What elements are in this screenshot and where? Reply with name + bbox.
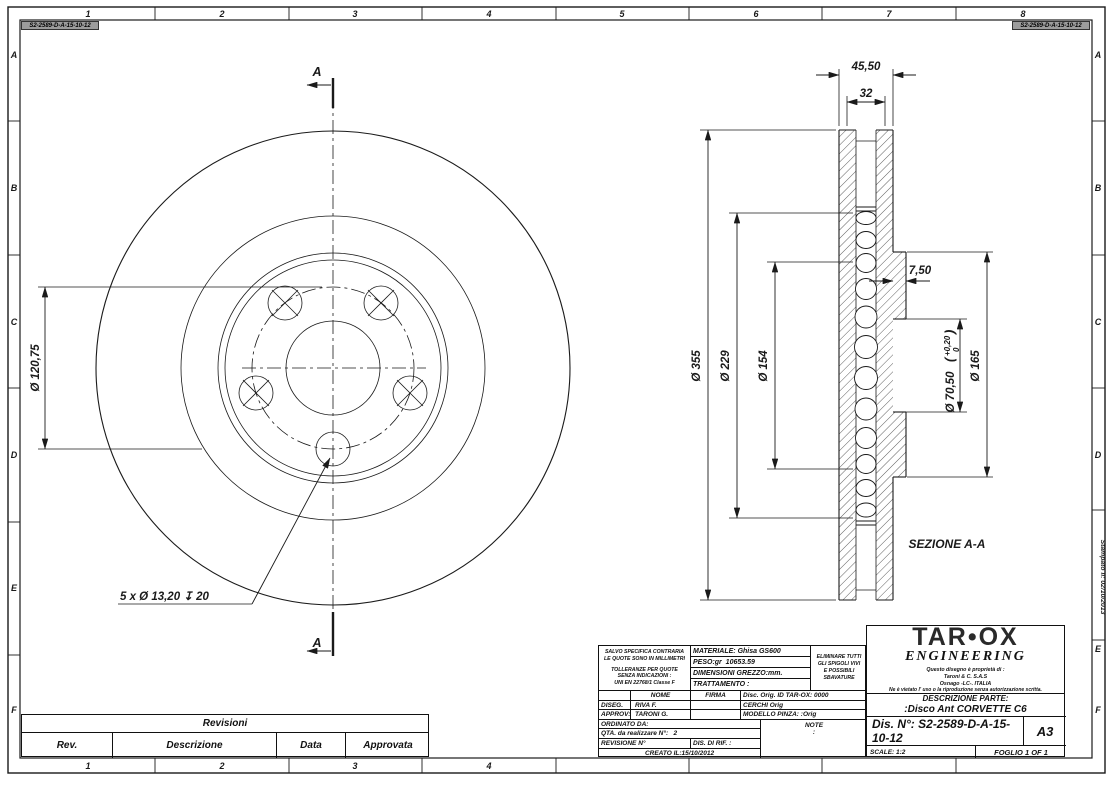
drawing-number-value: Dis. N°: S2-2589-D-A-15-10-12	[872, 717, 1023, 745]
brand-subtitle: ENGINEERING	[905, 650, 1026, 665]
ordinato-text: ORDINATO DA:	[601, 721, 648, 728]
brand-area: TAR•OX ENGINEERING Questo disegno è prop…	[867, 626, 1064, 693]
grid-col-label: 7	[886, 9, 892, 19]
vane-width-label: 32	[860, 88, 873, 100]
cerchi-text: CERCHI Orig	[743, 702, 783, 709]
part-description-area: DESCRIZIONE PARTE: :Disco Ant CORVETTE C…	[867, 693, 1064, 716]
drawing-number-text: S2-2589-D-A-15-10-12	[29, 23, 90, 29]
dim-bore-diameter: Ø 70,50 ( +0,20 0 )	[895, 319, 967, 412]
approv-firma-cell	[691, 710, 741, 720]
grid-row-label: C	[1095, 317, 1102, 327]
dim-vane-width: 32	[847, 88, 885, 126]
approv-label: APPROV:	[599, 710, 631, 720]
revisions-title-text: Revisioni	[203, 718, 247, 729]
center-lines	[242, 95, 426, 645]
grid-row-label: C	[11, 317, 18, 327]
vent-dia-label: Ø 229	[720, 350, 732, 382]
drawing-number-tag-right: S2-2589-D-A-15-10-12	[1012, 21, 1090, 30]
grid-col-label: 6	[753, 9, 759, 19]
grid-row-label: A	[10, 50, 18, 60]
ordinato-cell: ORDINATO DA:	[599, 720, 761, 729]
nome-header: NOME	[631, 691, 691, 701]
title-block: TAR•OX ENGINEERING Questo disegno è prop…	[866, 625, 1065, 757]
material-text: MATERIALE: Ghisa GS600	[693, 648, 781, 655]
holes-callout: 5 x Ø 13,20 ↧ 20	[118, 458, 330, 604]
outer-dia-label: Ø 355	[691, 350, 703, 382]
sheet-number-cell: FOGLIO 1 OF 1	[975, 745, 1066, 758]
diseg-name-text: RIVA F.	[635, 702, 657, 709]
sheet-format-value: A3	[1037, 724, 1054, 739]
revisions-title: Revisioni	[22, 715, 428, 733]
sheet-format-cell: A3	[1023, 716, 1066, 745]
bore-dia-label: Ø 70,50	[945, 371, 957, 413]
qty-text: QTA. da realizzare N°: 2	[601, 730, 677, 737]
deburr-line: GLI SPIGOLI VIVI	[818, 661, 860, 668]
diseg-label: DISEG.	[599, 701, 631, 710]
revisions-col-data: Data	[277, 733, 346, 758]
modello-text: MODELLO PINZA: :Orig	[743, 711, 816, 718]
brand-logo: TAR•OX	[912, 626, 1018, 650]
units-tolerance-notes: SALVO SPECIFICA CONTRARIA LE QUOTE SONO …	[599, 646, 691, 691]
grid-row-label: D	[11, 450, 18, 460]
approv-text: APPROV:	[601, 711, 630, 718]
note-box: NOTE :	[761, 720, 867, 758]
dim-flange-diameter: Ø 165	[907, 252, 993, 477]
revisions-col-approvata: Approvata	[346, 733, 430, 758]
disc-orig-text: Disc. Orig. ID TAR-OX: 0000	[743, 692, 828, 699]
col-data-text: Data	[300, 740, 322, 751]
grid-col-label: 4	[485, 761, 491, 771]
tol-note-line: SENZA INDICAZIONI :	[618, 673, 672, 680]
grid-row-label: D	[1095, 450, 1102, 460]
ownership-line: Osnago -LC-. ITALIA	[940, 681, 991, 688]
bore-tol-zero: 0	[952, 347, 961, 352]
tol-note-line: TOLLERANZE PER QUOTE	[611, 667, 678, 674]
section-view: 45,50 32 Ø 355 Ø 229	[691, 61, 993, 600]
section-hatching	[839, 130, 906, 600]
note-label-text: NOTE	[805, 722, 823, 729]
deburr-line: E POSSIBILI	[824, 668, 855, 675]
revisions-table: Revisioni Rev. Descrizione Data Approvat…	[21, 714, 429, 757]
bolt-circle-dim-label: Ø 120,75	[30, 344, 42, 392]
part-description-value: :Disco Ant CORVETTE C6	[904, 704, 1026, 716]
flange-dia-label: Ø 165	[970, 350, 982, 382]
col-desc-text: Descrizione	[166, 740, 222, 751]
modello-pinza-cell: MODELLO PINZA: :Orig	[741, 710, 867, 720]
section-letter: A	[311, 636, 321, 650]
grid-row-label: B	[1095, 183, 1102, 193]
revisione-text: REVISIONE N°	[601, 740, 646, 747]
drawing-number-text: S2-2589-D-A-15-10-12	[1020, 23, 1081, 29]
revisions-col-rev: Rev.	[22, 733, 113, 758]
spec-block: SALVO SPECIFICA CONTRARIA LE QUOTE SONO …	[598, 645, 866, 757]
scale-cell: SCALE: 1:2	[867, 745, 975, 758]
diseg-firma-cell	[691, 701, 741, 710]
grid-row-label: F	[11, 705, 17, 715]
nome-text: NOME	[651, 692, 671, 699]
approv-name-cell: TARONI G.	[631, 710, 691, 720]
col-appr-text: Approvata	[363, 740, 412, 751]
part-description-label: DESCRIZIONE PARTE:	[923, 694, 1009, 704]
grid-col-label: 4	[485, 9, 491, 19]
deburr-line: SBAVATURE	[823, 675, 854, 682]
section-cut-marker-bottom: A	[307, 612, 333, 656]
tol-note-line: UNI EN 22768/1 Classe F	[614, 680, 675, 687]
revisione-cell: REVISIONE N°	[599, 739, 691, 749]
grid-row-label: F	[1095, 705, 1101, 715]
diseg-name-cell: RIVA F.	[631, 701, 691, 710]
col-rev-text: Rev.	[57, 740, 78, 751]
bore-tol-plus: +0,20	[943, 335, 952, 356]
grid-row-label: B	[11, 183, 18, 193]
grid-row-label: E	[1095, 644, 1102, 654]
treatment-text: TRATTAMENTO :	[693, 681, 749, 688]
cerchi-cell: CERCHI Orig	[741, 701, 867, 710]
hat-dia-label: Ø 154	[758, 350, 770, 382]
grid-col-label: 2	[218, 9, 224, 19]
holes-note-label: 5 x Ø 13,20 ↧ 20	[120, 591, 210, 603]
drawing-number-tag-left: S2-2589-D-A-15-10-12	[21, 21, 99, 30]
grid-col-label: 1	[85, 761, 90, 771]
deburr-line: ELIMINARE TUTTI	[817, 654, 862, 661]
qty-cell: QTA. da realizzare N°: 2	[599, 729, 761, 739]
grid-row-label: E	[11, 583, 18, 593]
approv-name-text: TARONI G.	[635, 711, 668, 718]
grid-col-label: 5	[619, 9, 625, 19]
created-text: CREATO IL:15/10/2012	[645, 750, 714, 757]
weight-cell: PESO:gr 10653.59	[691, 657, 811, 668]
raw-dims-text: DIMENSIONI GREZZO:mm.	[693, 670, 782, 677]
grid-col-label: 1	[85, 9, 90, 19]
ownership-line: Questo disegno è proprietà di :	[926, 667, 1004, 674]
drawing-number-cell: Dis. N°: S2-2589-D-A-15-10-12	[867, 716, 1023, 745]
section-letter: A	[311, 65, 321, 79]
empty-cell	[599, 691, 631, 701]
units-note-line: LE QUOTE SONO IN MILLIMETRI	[604, 656, 685, 663]
front-view: A A Ø 120,75 5 x Ø 13,20 ↧ 20	[30, 65, 570, 656]
grid-col-label: 8	[1020, 9, 1025, 19]
units-note-line: SALVO SPECIFICA CONTRARIA	[605, 649, 684, 656]
scale-value: SCALE: 1:2	[870, 749, 905, 756]
section-cut-marker-top: A	[307, 65, 333, 108]
dim-vent-diameter: Ø 229	[720, 213, 853, 518]
deburr-note: ELIMINARE TUTTI GLI SPIGOLI VIVI E POSSI…	[811, 646, 867, 691]
grid-col-label: 3	[352, 761, 357, 771]
vent-holes	[855, 207, 878, 525]
hat-wall-label: 7,50	[909, 265, 932, 277]
overall-width-label: 45,50	[851, 61, 881, 73]
dis-rif-text: DIS. DI RIF. :	[693, 740, 731, 747]
dis-rif-cell: DIS. DI RIF. :	[691, 739, 761, 749]
section-view-title: SEZIONE A-A	[909, 537, 986, 551]
note-value-text: :	[813, 729, 815, 736]
disc-orig-cell: Disc. Orig. ID TAR-OX: 0000	[741, 691, 867, 701]
grid-row-label: A	[1094, 50, 1102, 60]
created-cell: CREATO IL:15/10/2012	[599, 749, 761, 758]
revisions-col-descrizione: Descrizione	[113, 733, 277, 758]
printed-date-note: Stampato il: 02/10/2013	[1099, 540, 1106, 615]
drawing-sheet: 1 2 3 4 5 6 7 8 1 2 3 4 A B C D E F A B …	[0, 0, 1113, 786]
diseg-text: DISEG.	[601, 702, 623, 709]
treatment-cell: TRATTAMENTO :	[691, 679, 811, 691]
bore-tol-paren-close: )	[942, 330, 957, 336]
firma-text: FIRMA	[705, 692, 726, 699]
grid-col-label: 2	[218, 761, 224, 771]
weight-text: PESO:gr 10653.59	[693, 659, 755, 666]
ownership-line: Taroni & C. S.A.S	[944, 674, 987, 681]
material-cell: MATERIALE: Ghisa GS600	[691, 646, 811, 657]
raw-dimensions-cell: DIMENSIONI GREZZO:mm.	[691, 668, 811, 679]
grid-col-label: 3	[352, 9, 357, 19]
sheet-number-value: FOGLIO 1 OF 1	[994, 748, 1048, 757]
firma-header: FIRMA	[691, 691, 741, 701]
